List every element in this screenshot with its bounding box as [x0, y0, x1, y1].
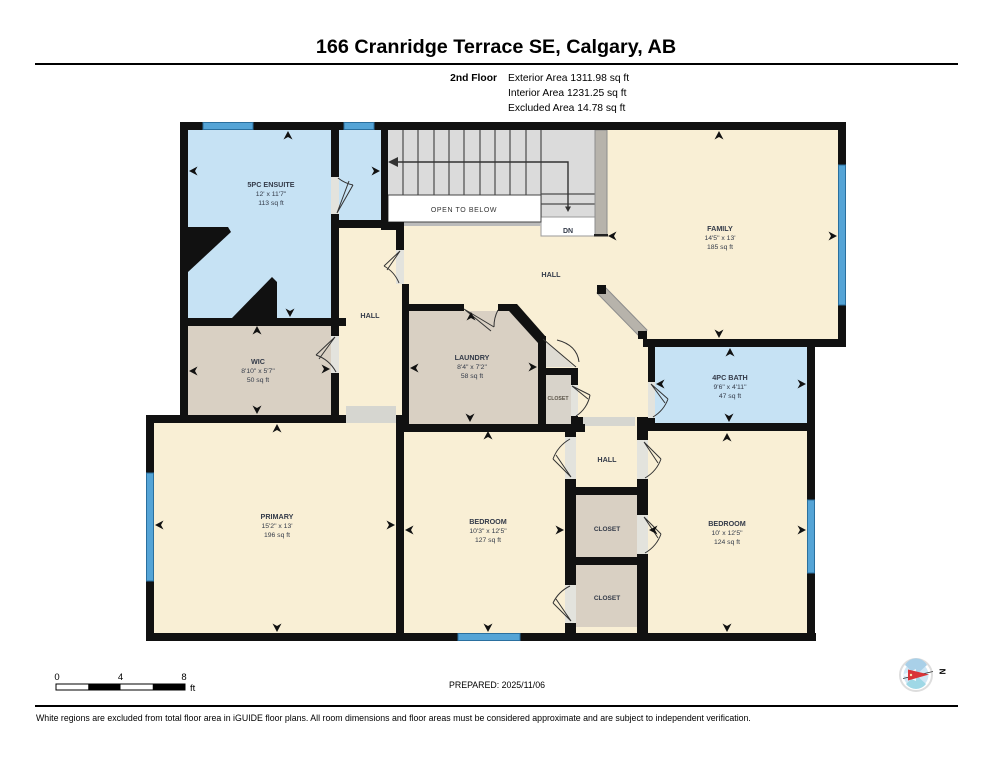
- svg-text:CLOSET: CLOSET: [547, 396, 569, 402]
- svg-text:CLOSET: CLOSET: [594, 526, 620, 533]
- svg-text:OPEN TO BELOW: OPEN TO BELOW: [431, 207, 497, 214]
- svg-text:4: 4: [118, 672, 123, 683]
- svg-text:10' x 12'5": 10' x 12'5": [711, 530, 743, 537]
- svg-text:PRIMARY: PRIMARY: [261, 512, 294, 521]
- svg-text:DN: DN: [563, 228, 573, 235]
- svg-text:127 sq ft: 127 sq ft: [475, 537, 501, 544]
- svg-text:HALL: HALL: [541, 270, 561, 279]
- svg-text:58 sq ft: 58 sq ft: [461, 373, 483, 380]
- svg-text:N: N: [938, 669, 947, 675]
- svg-text:8'4" x 7'2": 8'4" x 7'2": [457, 364, 487, 371]
- svg-text:113 sq ft: 113 sq ft: [258, 200, 284, 207]
- svg-text:2nd Floor: 2nd Floor: [450, 73, 497, 84]
- svg-text:Excluded Area 14.78 sq ft: Excluded Area 14.78 sq ft: [508, 103, 625, 114]
- svg-text:4PC BATH: 4PC BATH: [712, 373, 747, 382]
- svg-text:47 sq ft: 47 sq ft: [719, 393, 741, 400]
- svg-text:14'5" x 13': 14'5" x 13': [704, 235, 735, 242]
- svg-text:LAUNDRY: LAUNDRY: [455, 353, 490, 362]
- svg-text:8'10" x 5'7": 8'10" x 5'7": [241, 368, 275, 375]
- svg-text:124 sq ft: 124 sq ft: [714, 539, 740, 546]
- svg-text:ft: ft: [190, 683, 196, 694]
- svg-text:CLOSET: CLOSET: [594, 595, 620, 602]
- svg-text:12' x 11'7": 12' x 11'7": [256, 191, 287, 198]
- svg-text:HALL: HALL: [360, 311, 380, 320]
- svg-text:5PC ENSUITE: 5PC ENSUITE: [247, 180, 294, 189]
- svg-text:FAMILY: FAMILY: [707, 224, 733, 233]
- svg-text:Exterior Area 1311.98 sq ft: Exterior Area 1311.98 sq ft: [508, 73, 629, 84]
- svg-text:BEDROOM: BEDROOM: [708, 519, 746, 528]
- svg-text:PREPARED: 2025/11/06: PREPARED: 2025/11/06: [449, 680, 545, 690]
- svg-text:15'2" x 13': 15'2" x 13': [261, 523, 292, 530]
- svg-text:8: 8: [181, 672, 186, 683]
- svg-text:0: 0: [54, 672, 59, 683]
- svg-text:White regions are excluded fro: White regions are excluded from total fl…: [36, 713, 751, 723]
- svg-text:50 sq ft: 50 sq ft: [247, 377, 269, 384]
- svg-text:196 sq ft: 196 sq ft: [264, 532, 290, 539]
- svg-text:10'3" x 12'5": 10'3" x 12'5": [469, 528, 507, 535]
- svg-text:166 Cranridge Terrace SE, Calg: 166 Cranridge Terrace SE, Calgary, AB: [316, 36, 676, 58]
- svg-text:HALL: HALL: [597, 455, 617, 464]
- svg-text:Interior Area 1231.25 sq ft: Interior Area 1231.25 sq ft: [508, 88, 627, 99]
- svg-text:WIC: WIC: [251, 357, 265, 366]
- svg-text:9'6" x 4'11": 9'6" x 4'11": [714, 384, 748, 391]
- svg-text:185 sq ft: 185 sq ft: [707, 244, 733, 251]
- svg-text:BEDROOM: BEDROOM: [469, 517, 507, 526]
